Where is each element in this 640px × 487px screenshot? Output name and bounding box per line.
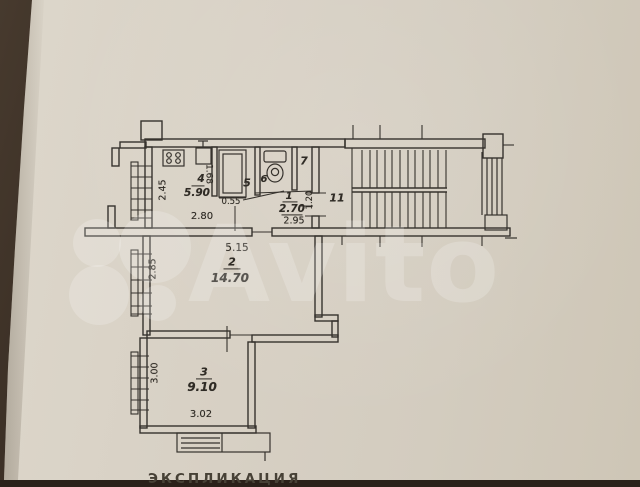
room2-number: 2 xyxy=(228,257,236,268)
room2-fraction-line xyxy=(224,268,241,269)
room5-number: 5 xyxy=(243,178,251,189)
stairs xyxy=(352,148,447,228)
sink-icon xyxy=(196,141,211,164)
dim-3-02: 3.02 xyxy=(190,410,212,420)
bathtub-icon xyxy=(219,150,246,197)
window-kitchen xyxy=(131,162,152,220)
room3-number: 3 xyxy=(200,367,208,378)
dim-5-15: 5.15 xyxy=(225,243,248,254)
explication-caption: ЭКСПЛИКАЦИЯ xyxy=(148,471,368,487)
dim-3-00: 3.00 xyxy=(150,362,160,383)
dim-1-20: 1.20 xyxy=(306,191,315,210)
photographed-floorplan: 2.45 4 5.90 1.68 2.80 5 0.55 6 7 1 2.70 … xyxy=(0,0,640,480)
chimney-shaft xyxy=(141,121,162,140)
room11-number: 11 xyxy=(329,193,344,204)
stairwell-right-window xyxy=(482,152,517,238)
room1-area: 2.70 xyxy=(279,204,305,215)
room7-number: 7 xyxy=(300,156,308,167)
floorplan-svg xyxy=(0,0,640,480)
balcony xyxy=(177,433,270,461)
room2-area: 14.70 xyxy=(211,272,249,284)
dim-1-68: 1.68 xyxy=(204,164,213,184)
dim-2-45: 2.45 xyxy=(158,179,168,200)
dim-2-85: 2.85 xyxy=(148,258,158,279)
dim-2-95: 2.95 xyxy=(283,216,304,226)
dim-2-80: 2.80 xyxy=(191,212,213,222)
stove-icon xyxy=(163,150,184,166)
room4-area: 5.90 xyxy=(184,188,210,199)
stair-pilaster-top xyxy=(483,134,503,158)
room6-number: 6 xyxy=(261,175,268,185)
room3-area: 9.10 xyxy=(187,381,217,393)
dim-0-55: 0.55 xyxy=(222,198,241,207)
floorplan-drawing: 2.45 4 5.90 1.68 2.80 5 0.55 6 7 1 2.70 … xyxy=(0,0,640,480)
